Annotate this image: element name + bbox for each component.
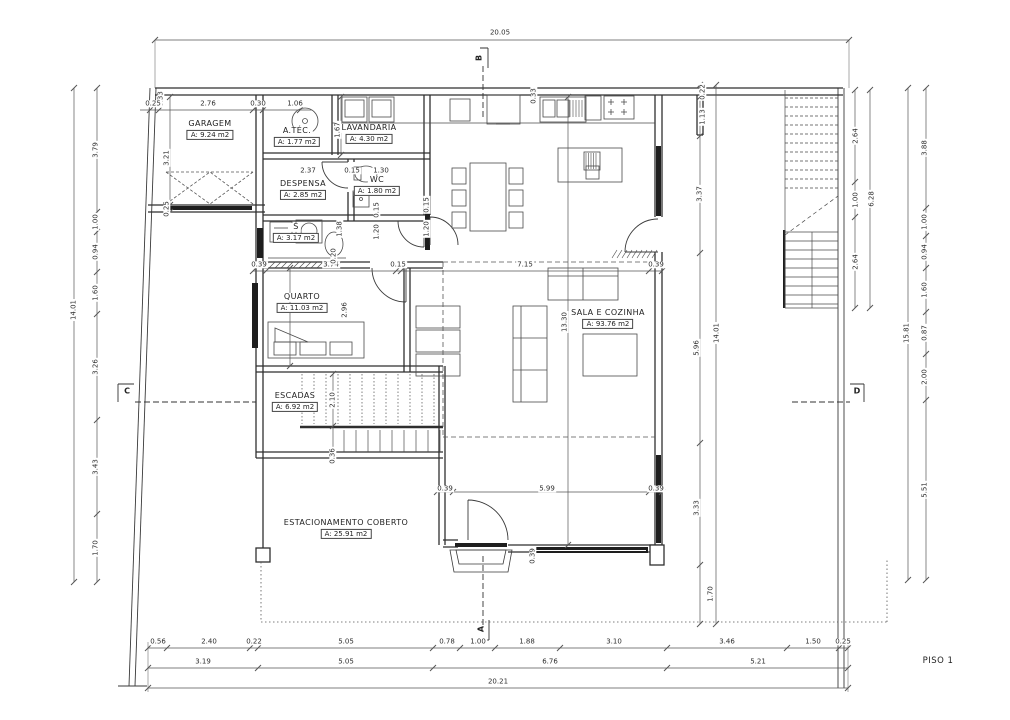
cabinet (416, 330, 460, 352)
kitchen-unit (450, 99, 470, 121)
floor-plan-drawing (0, 0, 1010, 720)
wc-door (398, 221, 424, 247)
garage-door-symbol (166, 172, 253, 204)
sofa (513, 306, 547, 402)
bed (268, 322, 364, 358)
interior-stairs (300, 374, 443, 452)
section-marker-a-bracket (481, 620, 489, 640)
entrance-door (468, 500, 508, 540)
chair (452, 168, 466, 184)
exterior-stairs (785, 90, 838, 308)
patio-door (625, 219, 658, 252)
dining-table (470, 163, 506, 231)
cabinet (416, 306, 460, 328)
floor-plan-canvas: A B C D PISO 1 20.050.330.252.760.301.06… (0, 0, 1010, 720)
hall-door (430, 217, 458, 245)
furniture (268, 95, 655, 402)
chair (509, 212, 523, 228)
chair (452, 190, 466, 206)
property-boundary-lines (118, 88, 844, 688)
entrance-steps (450, 550, 512, 572)
double-height-outline (443, 262, 655, 437)
kitchen-island (558, 148, 622, 182)
washbasin (353, 191, 369, 207)
kitchen-unit (585, 96, 601, 120)
machine (296, 220, 322, 243)
washer (342, 97, 367, 122)
section-marker-b-bracket (480, 48, 488, 68)
section-lines (118, 48, 864, 640)
water-heater (292, 108, 318, 134)
island-grill (584, 152, 600, 170)
despensa-door (322, 162, 348, 188)
fridge (487, 95, 520, 124)
section-marker-d-bracket (850, 384, 864, 402)
quarto-door (372, 268, 406, 302)
chair (509, 168, 523, 184)
burners (608, 99, 627, 115)
toilet (325, 232, 343, 256)
doors (322, 162, 658, 540)
cabinet (416, 354, 460, 376)
chair (452, 212, 466, 228)
chair (509, 190, 523, 206)
bed-pillow (275, 328, 308, 342)
dryer (369, 97, 394, 122)
coffee-table (583, 334, 637, 376)
section-marker-c-bracket (118, 384, 134, 402)
washer (270, 222, 292, 242)
dimension-lines (71, 37, 929, 692)
stove (604, 96, 634, 119)
carport-roof-outline (261, 558, 887, 622)
